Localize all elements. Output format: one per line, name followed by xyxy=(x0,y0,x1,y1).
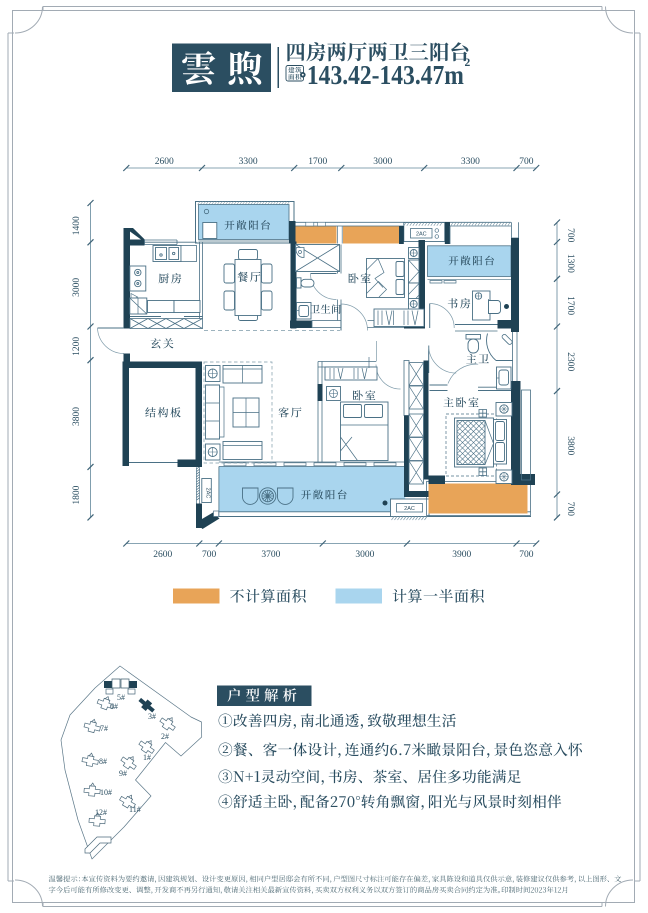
svg-text:1400: 1400 xyxy=(72,216,82,235)
svg-text:143.42-143.47m: 143.42-143.47m xyxy=(307,60,464,90)
svg-text:1300: 1300 xyxy=(565,254,575,273)
svg-text:2#: 2# xyxy=(161,732,169,741)
svg-text:12#: 12# xyxy=(95,808,107,817)
svg-text:1700: 1700 xyxy=(308,157,327,167)
svg-text:10#: 10# xyxy=(100,788,112,797)
svg-text:2AC: 2AC xyxy=(404,506,415,512)
svg-text:3700: 3700 xyxy=(261,550,280,560)
svg-text:2300: 2300 xyxy=(565,352,575,371)
svg-text:700: 700 xyxy=(519,550,534,560)
svg-text:5#: 5# xyxy=(117,693,125,702)
svg-text:6#: 6# xyxy=(110,702,118,711)
svg-text:3800: 3800 xyxy=(565,436,575,455)
svg-text:2AC: 2AC xyxy=(416,232,427,238)
svg-text:1700: 1700 xyxy=(565,296,575,315)
svg-text:7#: 7# xyxy=(100,724,108,733)
svg-text:2600: 2600 xyxy=(153,550,172,560)
svg-text:700: 700 xyxy=(202,550,217,560)
svg-text:700: 700 xyxy=(519,157,534,167)
svg-text:2AC: 2AC xyxy=(205,488,211,499)
svg-text:3000: 3000 xyxy=(373,157,392,167)
svg-text:700: 700 xyxy=(565,228,575,243)
svg-text:2: 2 xyxy=(465,57,471,69)
svg-text:9#: 9# xyxy=(119,769,127,778)
svg-text:3#: 3# xyxy=(148,712,156,721)
svg-text:3300: 3300 xyxy=(461,157,480,167)
svg-text:3000: 3000 xyxy=(355,550,374,560)
svg-text:2600: 2600 xyxy=(155,157,174,167)
svg-text:1200: 1200 xyxy=(72,337,82,356)
svg-text:3300: 3300 xyxy=(239,157,258,167)
svg-text:1#: 1# xyxy=(143,753,151,762)
svg-text:3800: 3800 xyxy=(72,407,82,426)
svg-text:700: 700 xyxy=(565,502,575,517)
svg-text:1800: 1800 xyxy=(72,485,82,504)
svg-text:3900: 3900 xyxy=(452,550,471,560)
svg-text:8#: 8# xyxy=(99,757,107,766)
svg-text:3000: 3000 xyxy=(72,278,82,297)
svg-text:11#: 11# xyxy=(129,805,141,814)
